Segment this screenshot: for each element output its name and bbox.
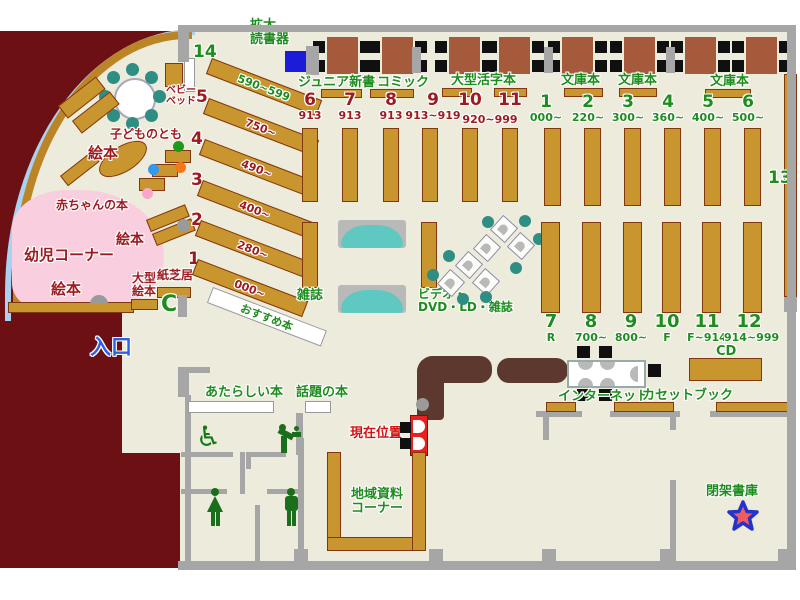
- wall: [670, 480, 676, 554]
- seat-mark: [578, 378, 593, 386]
- stack-label: 4360~: [648, 94, 688, 123]
- wall: [185, 395, 191, 567]
- wall-stub: [294, 549, 308, 562]
- stack-label: 1000~: [526, 94, 566, 123]
- woman-icon: [206, 488, 224, 528]
- baby-bed-shelf: [165, 63, 183, 87]
- chair: [599, 346, 612, 358]
- wall-shelf: [614, 402, 674, 412]
- baby-bed-label: ベビーベッド: [166, 86, 196, 107]
- bookstack: [664, 128, 681, 206]
- bookstack: [582, 222, 601, 313]
- bookstack: [584, 128, 601, 206]
- magazine-display: [338, 285, 406, 313]
- kodomono-tomo-label: 子どものとも: [110, 128, 182, 141]
- av-stack: [421, 222, 437, 288]
- reading-table: [746, 37, 777, 74]
- wall-stub: [660, 549, 676, 562]
- reading-table: [449, 37, 480, 74]
- bookstack: [743, 222, 762, 313]
- bookstack: [342, 128, 358, 202]
- baby-books-label: 赤ちゃんの本: [56, 199, 128, 212]
- comic-label: コミック: [377, 76, 429, 90]
- cd-label: CD: [716, 345, 736, 359]
- marker-block: [400, 422, 411, 433]
- wall: [240, 452, 245, 494]
- entrance-label: 入口: [90, 336, 132, 358]
- wall-shelf: [546, 402, 576, 412]
- orange-stool: [175, 162, 186, 173]
- wall-stub: [178, 31, 189, 62]
- large-picture-books-label: 大型絵本: [128, 272, 160, 297]
- large-picture-books-shelf: [131, 299, 158, 310]
- stack-label: 11: [490, 92, 530, 110]
- reading-table: [382, 37, 413, 74]
- device-stand: [306, 46, 319, 75]
- bookstack: [704, 128, 721, 206]
- wall: [670, 414, 676, 430]
- new-books-label: あたらしい本: [205, 386, 283, 400]
- reading-table: [685, 37, 716, 74]
- bookstack: [502, 128, 518, 202]
- man-icon: [282, 488, 300, 528]
- table-divider: [666, 47, 675, 73]
- chair: [577, 346, 590, 358]
- wall: [543, 414, 549, 440]
- seat-mark: [600, 378, 615, 386]
- new-books-shelf: [188, 401, 274, 413]
- wall-right: [787, 25, 796, 570]
- round-table-chairs: [153, 90, 166, 103]
- av-booth-chairs: [519, 215, 531, 227]
- round-table: [114, 78, 156, 120]
- local-corner-shelf: [412, 452, 426, 551]
- magazine-display: [338, 220, 406, 248]
- table-divider: [544, 47, 553, 73]
- stack-label: 12914~999: [724, 313, 774, 343]
- blue-stool: [148, 164, 159, 175]
- stack-shared-range: 920~999: [462, 114, 518, 126]
- pink-stool: [142, 188, 153, 199]
- wall-post: [178, 295, 187, 317]
- wall: [246, 452, 251, 469]
- stack-label: 6500~: [728, 94, 768, 123]
- picture-books-label: 絵本: [116, 233, 144, 248]
- star-icon: [727, 500, 759, 532]
- current-location-label: 現在位置: [350, 427, 402, 441]
- wall-stub: [778, 549, 790, 562]
- pillar: [177, 219, 190, 232]
- bookstack: [702, 222, 721, 313]
- stack-label: 2220~: [568, 94, 608, 123]
- table-divider: [412, 47, 421, 73]
- magazine-stack: [302, 222, 318, 288]
- magnifier-reader-device: [285, 51, 306, 72]
- wheelchair-icon: ♿: [196, 420, 221, 453]
- chair: [648, 364, 661, 377]
- wall-stub: [542, 549, 556, 562]
- junior-books-label: ジュニア新書: [298, 76, 375, 90]
- reading-table: [624, 37, 655, 74]
- library-floor-map: C 子どものとも 絵本 赤ちゃんの本 絵本 幼児コーナー 絵本 大型絵本 紙芝居…: [0, 0, 800, 600]
- toddler-corner-label: 幼児コーナー: [24, 248, 114, 264]
- topic-books-shelf: [305, 401, 331, 413]
- kamishibai-label: 紙芝居: [157, 269, 193, 282]
- bookstack: [744, 128, 761, 206]
- reading-table: [327, 37, 358, 74]
- reading-table: [562, 37, 593, 74]
- service-counter: [497, 358, 568, 383]
- bookstack: [422, 128, 438, 202]
- drinking-fountain-icon: [278, 422, 302, 454]
- closed-stack-label: 閉架書庫: [706, 485, 758, 499]
- stack-label: 6913: [290, 92, 330, 121]
- bookstack: [624, 128, 641, 206]
- wall-stub: [429, 549, 443, 562]
- video-label: ビデオ・DVD・LD・雑誌: [418, 288, 513, 313]
- stack-label: 10: [450, 92, 490, 110]
- wall-top: [178, 25, 796, 32]
- green-stool: [173, 141, 184, 152]
- large-print-label: 大型活字本: [451, 74, 516, 88]
- picture-books-label: 絵本: [88, 146, 118, 162]
- gate-icon: C: [161, 293, 177, 316]
- children-bottom-wall: [8, 302, 134, 313]
- wall-shelf: [716, 402, 793, 412]
- stack-label: 7913: [330, 92, 370, 121]
- bookstack: [662, 222, 681, 313]
- wall: [255, 505, 260, 563]
- bunko-label: 文庫本: [710, 75, 749, 89]
- bookstack: [462, 128, 478, 202]
- outside-area-bottomleft: [0, 450, 180, 568]
- cassette-label: カセットブック: [642, 389, 733, 403]
- bookstack: [623, 222, 642, 313]
- bookstack: [544, 128, 561, 206]
- magazine-label: 雑誌: [297, 289, 323, 303]
- bookstack: [383, 128, 399, 202]
- cd-shelf: [689, 358, 762, 381]
- outside-area-entrance: [0, 313, 122, 453]
- magnifier-reader-label: 拡大読書器: [250, 19, 289, 46]
- topic-books-label: 話題の本: [296, 386, 348, 400]
- picture-books-label: 絵本: [51, 282, 81, 298]
- service-counter: [417, 356, 492, 383]
- bookstack: [302, 128, 318, 202]
- local-corner-label: 地域資料コーナー: [340, 488, 414, 515]
- bookstack: [541, 222, 560, 313]
- bunko-label: 文庫本: [561, 74, 600, 88]
- marker-block: [400, 438, 411, 449]
- stack-label: 3300~: [608, 94, 648, 123]
- stack-label: 5400~: [688, 94, 728, 123]
- wall: [178, 373, 189, 397]
- reading-table: [499, 37, 530, 74]
- pillar: [416, 398, 429, 411]
- bunko-label: 文庫本: [618, 74, 657, 88]
- wall-bottom: [178, 561, 796, 570]
